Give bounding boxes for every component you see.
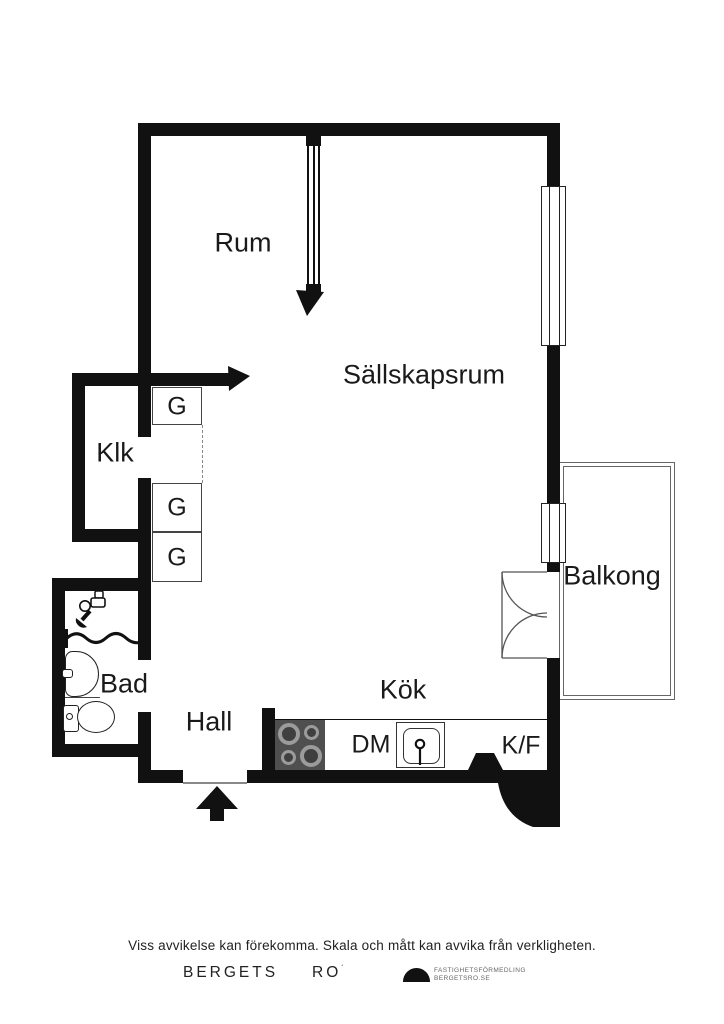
label-klk: Klk [96, 438, 134, 469]
agency-line1: FASTIGHETSFÖRMEDLING [434, 967, 526, 975]
plan-overlay [0, 0, 724, 1024]
brand-trademark: ´ [341, 964, 344, 973]
label-dishwasher: DM [352, 731, 391, 760]
floorplan-page: Rum Sällskapsrum Klk Balkong Bad Hall Kö… [0, 0, 724, 1024]
label-wardrobe-1: G [167, 393, 186, 422]
shower-mixer-icon [76, 591, 105, 628]
wall-opening-arrow-icon [228, 366, 250, 391]
shower-pipe [82, 611, 90, 620]
brand-ro: RO´ [312, 964, 344, 982]
label-wardrobe-3: G [167, 544, 186, 573]
agency-line2: BERGETSRO.SE [434, 975, 526, 983]
entrance-arrow-up-icon [196, 786, 238, 821]
kitchen-faucet-icon [416, 740, 424, 765]
disclaimer-text: Viss avvikelse kan förekomma. Skala och … [0, 938, 724, 953]
double-door-swing-icon [502, 572, 547, 658]
label-bad: Bad [100, 669, 148, 700]
brand-ro-text: RO [312, 964, 341, 981]
label-fridge-freezer: K/F [502, 732, 541, 761]
wall-curved-corner [498, 770, 560, 827]
wall-bump [468, 753, 503, 770]
shower-curtain-wave-icon [66, 634, 147, 643]
shower-knob [95, 591, 103, 598]
shower-wheel [80, 601, 90, 611]
agency-text: FASTIGHETSFÖRMEDLING BERGETSRO.SE [434, 967, 526, 983]
faucet-base [416, 740, 424, 748]
brand-bergets: BERGETS [183, 964, 278, 982]
label-hall: Hall [186, 707, 233, 738]
label-rum: Rum [214, 228, 271, 259]
door-swing-arc-top [502, 572, 547, 617]
label-wardrobe-2: G [167, 494, 186, 523]
door-swing-arc-bottom [502, 613, 547, 658]
partition-arrow-icon [296, 290, 324, 316]
label-sallskapsrum: Sällskapsrum [343, 360, 505, 391]
label-kok: Kök [380, 675, 427, 706]
label-balkong: Balkong [563, 561, 661, 592]
shower-valve [91, 598, 105, 607]
